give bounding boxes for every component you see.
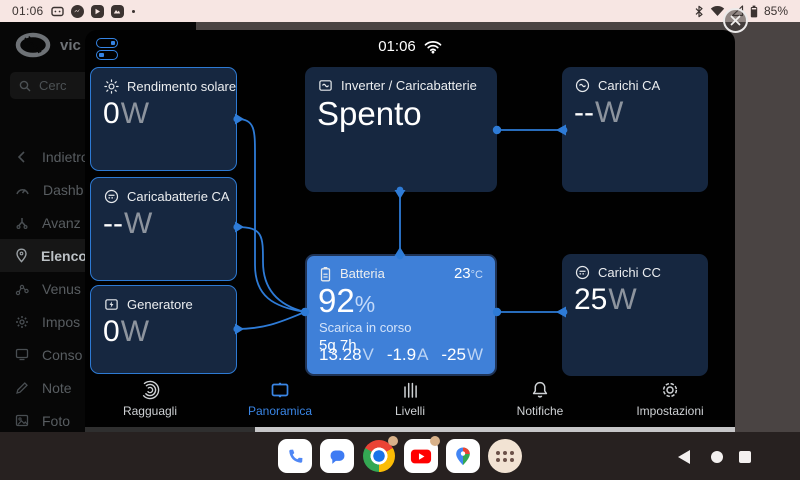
app-drawer-icon[interactable] [488, 439, 522, 473]
tab-label: Notifiche [517, 404, 564, 418]
nav-home-button[interactable] [711, 451, 723, 463]
battery-voltage: 13.28 [319, 345, 362, 364]
tile-generator-label: Generatore [127, 297, 193, 312]
battery-state: Scarica in corso [307, 319, 495, 335]
nav-back-button[interactable] [678, 450, 690, 464]
dc-charger-icon [104, 189, 119, 204]
ac-charger-value: -- [103, 207, 123, 240]
sidebar-item-label: Foto [42, 413, 70, 429]
youtube-notification-icon [91, 5, 104, 18]
console-time: 01:06 [378, 38, 416, 55]
android-screen: 01:06 85% vic Cerc [0, 0, 800, 480]
generator-icon [104, 297, 119, 312]
tile-ac-loads[interactable]: Carichi CA --W [562, 67, 708, 192]
wifi-status-icon [424, 40, 442, 54]
inverter-status: Spento [305, 93, 497, 133]
photos-notification-icon [111, 5, 124, 18]
tile-generator[interactable]: Generatore 0W [90, 285, 237, 374]
tab-impostazioni[interactable]: Impostazioni [605, 378, 735, 426]
victron-logo: vic [12, 32, 81, 58]
chrome-app-icon[interactable] [362, 439, 396, 473]
ac-charger-unit: W [124, 207, 152, 240]
sidebar-item-label: Note [42, 380, 72, 396]
notification-dot [430, 436, 440, 446]
battery-current-unit: A [417, 345, 428, 364]
bell-icon [529, 378, 551, 401]
ac-loads-unit: W [595, 96, 623, 129]
battery-measurements: 13.28V -1.9A -25W [319, 345, 483, 365]
generator-unit: W [121, 315, 149, 348]
youtube-app-icon[interactable] [404, 439, 438, 473]
pencil-icon [15, 381, 29, 395]
bluetooth-icon [694, 5, 704, 18]
tab-livelli[interactable]: Livelli [345, 378, 475, 426]
dc-loads-icon [575, 265, 590, 280]
chevron-left-icon [15, 150, 29, 164]
maps-app-icon[interactable] [446, 439, 480, 473]
messages-app-icon[interactable] [320, 439, 354, 473]
inverter-icon [318, 78, 333, 93]
ragguagli-icon [139, 378, 161, 401]
console-header: 01:06 [85, 30, 735, 66]
tile-dc-loads-label: Carichi CC [598, 265, 661, 280]
victron-logo-text: vic [60, 37, 81, 54]
tab-label: Impostazioni [636, 404, 703, 418]
victron-logo-icon [12, 32, 54, 58]
search-placeholder: Cerc [39, 78, 66, 93]
sidebar-item-label: Indietro [42, 149, 89, 165]
location-pin-icon [15, 248, 28, 263]
livelli-icon [399, 378, 421, 401]
sidebar-item-label: Dashb [43, 182, 83, 198]
tab-panoramica[interactable]: Panoramica [215, 378, 345, 426]
tile-ac-charger[interactable]: Caricabatterie CA --W [90, 177, 237, 281]
battery-icon [750, 5, 758, 18]
remote-console-panel: 01:06 Rendimento solare 0W Caricabatteri… [85, 30, 735, 432]
photo-icon [15, 414, 29, 427]
tile-battery-label: Batteria [340, 266, 385, 281]
dc-loads-value: 25 [574, 283, 607, 316]
tile-battery[interactable]: Batteria 23°C 92% Scarica in corso 5g 7h… [305, 254, 497, 376]
tile-solar[interactable]: Rendimento solare 0W [90, 67, 237, 171]
battery-temperature: 23 [454, 265, 471, 282]
battery-soc-unit: % [355, 291, 375, 317]
battery-temperature-unit: °C [471, 269, 483, 281]
diagnostics-icon [15, 216, 29, 230]
battery-power-unit: W [467, 345, 483, 364]
generator-value: 0 [103, 315, 120, 348]
console-tab-bar: Ragguagli Panoramica Livelli Notifiche I… [85, 378, 735, 426]
tile-solar-label: Rendimento solare [127, 79, 236, 94]
dc-loads-unit: W [608, 283, 636, 316]
close-icon [730, 15, 741, 26]
battery-tile-icon [319, 266, 332, 282]
sidebar-item-label: Venus [42, 281, 81, 297]
search-icon [19, 80, 31, 92]
status-bar: 01:06 85% [0, 0, 800, 22]
overflow-dot-icon [132, 10, 135, 13]
panoramica-icon [269, 378, 291, 401]
tab-notifiche[interactable]: Notifiche [475, 378, 605, 426]
battery-voltage-unit: V [363, 345, 374, 364]
phone-app-icon[interactable] [278, 439, 312, 473]
nav-recents-button[interactable] [739, 451, 751, 463]
sidebar-item-label: Elenco [41, 248, 87, 264]
close-button[interactable] [723, 8, 748, 33]
sidebar-item-label: Avanz [42, 215, 81, 231]
status-time: 01:06 [12, 4, 44, 18]
dashboard-icon [15, 183, 30, 197]
sidebar-item-label: Conso [42, 347, 82, 363]
tab-label: Ragguagli [123, 404, 177, 418]
battery-power: -25 [441, 345, 466, 364]
tab-label: Panoramica [248, 404, 312, 418]
message-notification-icon [51, 5, 64, 18]
tab-ragguagli[interactable]: Ragguagli [85, 378, 215, 426]
tab-label: Livelli [395, 404, 425, 418]
gear-icon [15, 315, 29, 329]
nodes-icon [15, 282, 29, 296]
tile-dc-loads[interactable]: Carichi CC 25W [562, 254, 708, 376]
solar-unit: W [121, 97, 149, 130]
notification-dot [388, 436, 398, 446]
console-icon [15, 348, 29, 361]
battery-soc: 92 [318, 282, 355, 319]
sun-icon [104, 79, 119, 94]
tile-inverter[interactable]: Inverter / Caricabatterie Spento [305, 67, 497, 192]
tile-inverter-label: Inverter / Caricabatterie [341, 78, 477, 93]
ac-loads-icon [575, 78, 590, 93]
wifi-icon [710, 5, 725, 17]
ac-loads-value: -- [574, 96, 594, 129]
solar-value: 0 [103, 97, 120, 130]
tile-ac-loads-label: Carichi CA [598, 78, 660, 93]
battery-current: -1.9 [387, 345, 416, 364]
messenger-notification-icon [71, 5, 84, 18]
sidebar-item-label: Impos [42, 314, 80, 330]
settings-gear-icon [659, 378, 681, 401]
tile-ac-charger-label: Caricabatterie CA [127, 189, 230, 204]
battery-percent: 85% [764, 4, 788, 18]
